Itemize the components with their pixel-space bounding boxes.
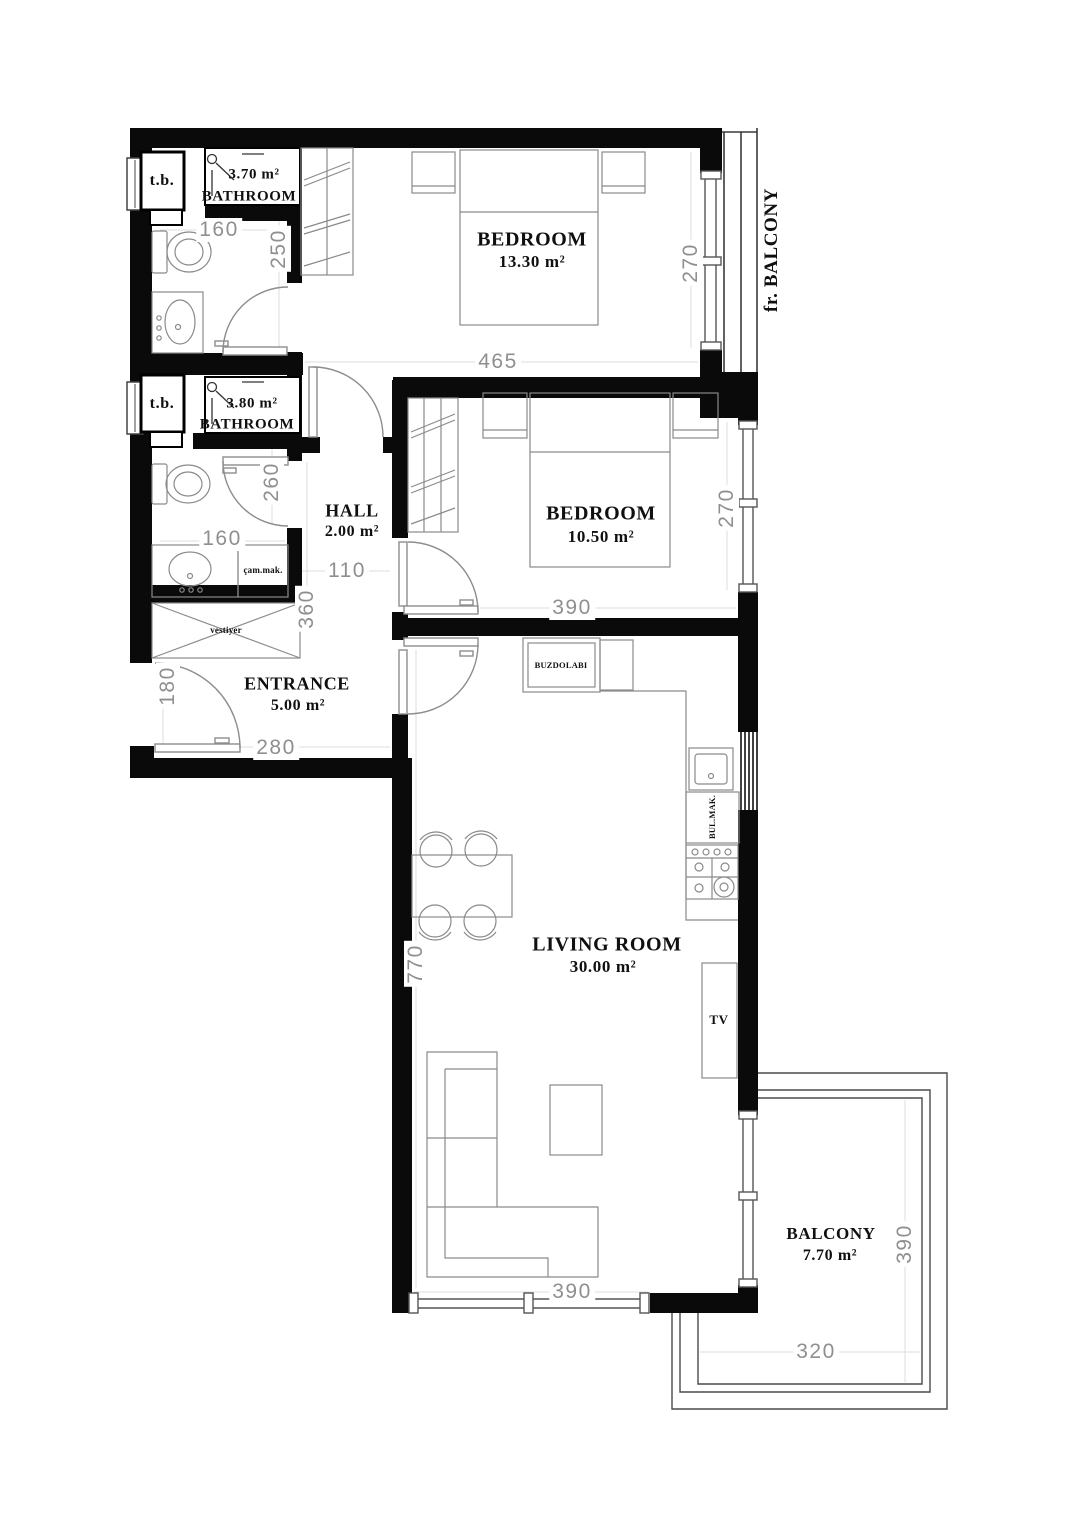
bathroom1-door-leaf <box>223 347 287 355</box>
dim-balcony-width: 320 <box>793 1340 839 1364</box>
washing-machine-label: çam.mak. <box>243 565 282 575</box>
dim-bathroom1-height: 250 <box>267 226 291 272</box>
bathroom1-area: 3.70 m² <box>228 167 279 184</box>
dim-living-height: 770 <box>404 941 428 987</box>
wardrobe-bedroom2 <box>408 398 458 532</box>
bathroom2-name: BATHROOM <box>200 417 295 434</box>
dim-bathroom2-height: 260 <box>260 459 284 505</box>
dim-bedroom1-height: 270 <box>679 240 703 286</box>
tb1-label: t.b. <box>150 172 175 190</box>
bedroom1-door-arc <box>313 367 383 437</box>
stove-icon <box>686 845 738 899</box>
floor-plan: t.b. 3.70 m² BATHROOM 160 250 t.b. 3.80 … <box>0 0 1080 1540</box>
walls <box>130 128 758 1313</box>
living-room-name: LIVING ROOM <box>532 934 681 957</box>
bathroom1-name: BATHROOM <box>202 189 297 206</box>
living-room-area: 30.00 m² <box>570 957 637 977</box>
kitchen-counter <box>600 691 738 920</box>
sink-icon <box>152 292 203 353</box>
bedroom2-area: 10.50 m² <box>568 527 635 547</box>
dim-bedroom2-width: 390 <box>549 596 595 620</box>
french-balcony-name: fr. BALCONY <box>761 188 783 312</box>
dim-bedroom2-height: 270 <box>715 485 739 531</box>
living-room-door-leaf <box>404 638 478 646</box>
bedroom1-area: 13.30 m² <box>499 252 566 272</box>
dim-living-width: 390 <box>549 1280 595 1304</box>
kitchen-sink-icon <box>689 748 733 790</box>
dim-bedroom1-width: 465 <box>475 350 521 374</box>
bathroom2-area: 3.80 m² <box>226 396 277 413</box>
sofa <box>427 1052 598 1277</box>
coffee-table <box>550 1085 602 1155</box>
dim-entrance-width: 280 <box>253 736 299 760</box>
fridge-label: BUZDOLABI <box>535 660 588 670</box>
hall-name: HALL <box>325 501 378 522</box>
french-balcony-railing <box>722 128 757 372</box>
dishwasher-label: BUL.MAK. <box>707 795 717 839</box>
nightstand <box>412 152 455 193</box>
balcony-area: 7.70 m² <box>803 1247 857 1265</box>
vestiyer-label: vestiyer <box>210 625 242 635</box>
bedroom1-door-leaf <box>309 367 317 437</box>
dining-chairs <box>419 831 497 940</box>
entrance-area: 5.00 m² <box>271 697 325 715</box>
dim-bathroom2-width: 160 <box>199 527 245 551</box>
kitchen-cabinet <box>600 640 633 690</box>
tv-label: TV <box>709 1012 728 1028</box>
kitchen-window-hatch <box>741 732 757 810</box>
bedroom2-door-leaf <box>404 606 478 614</box>
entrance-door-leaf <box>155 744 240 752</box>
dim-entrance-height: 180 <box>156 663 180 709</box>
closet-bedroom1 <box>301 148 353 275</box>
entrance-name: ENTRANCE <box>244 674 350 695</box>
furniture <box>152 148 739 1277</box>
dim-hall-width: 110 <box>325 559 369 583</box>
hall-area: 2.00 m² <box>325 523 379 541</box>
bedroom2-name: BEDROOM <box>546 503 656 526</box>
windows <box>409 171 757 1313</box>
bathroom1-door-arc <box>223 287 288 352</box>
toilet-icon <box>152 464 210 504</box>
dim-bathroom1-width: 160 <box>196 218 242 242</box>
dim-balcony-height: 390 <box>893 1221 917 1267</box>
bedroom1-name: BEDROOM <box>477 229 587 252</box>
nightstand <box>602 152 645 193</box>
balcony-name: BALCONY <box>786 1224 875 1244</box>
dim-hall-height: 360 <box>295 586 319 632</box>
nightstand <box>483 393 527 438</box>
tb2-label: t.b. <box>150 395 175 413</box>
